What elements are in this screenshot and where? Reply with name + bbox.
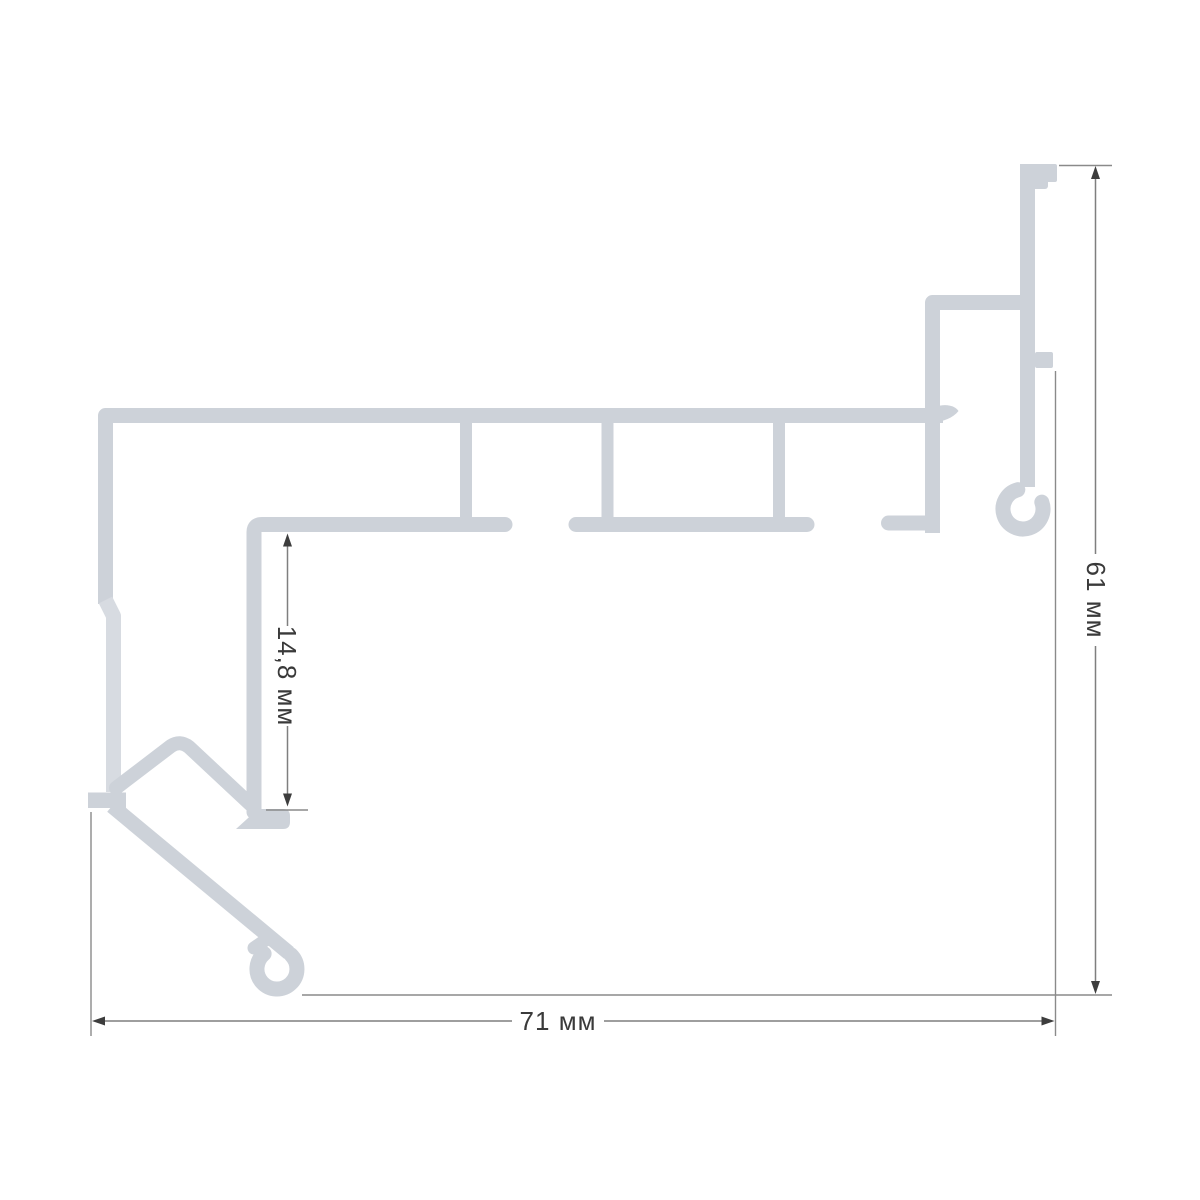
arrowhead-right-icon (1042, 1017, 1055, 1026)
profile-riser-arm (933, 303, 1031, 418)
profile-chevron-brace (116, 743, 250, 804)
inner-dimension-label: 14,8 мм (272, 626, 302, 727)
dimension-width: 71 мм (91, 371, 1056, 1036)
arrowhead-down-icon (1091, 981, 1100, 994)
arrowhead-left-icon (92, 1017, 105, 1026)
profile-cross-section-drawing: 61 мм 71 мм 14,8 мм (0, 0, 1200, 1200)
dimension-inner: 14,8 мм (266, 534, 308, 811)
profile-shape (88, 164, 1057, 989)
profile-right-hook (1003, 490, 1043, 529)
profile-left-wall-lower (106, 600, 114, 792)
profile-bottom-hook-tip (254, 939, 267, 948)
profile-side-tab (1035, 352, 1053, 368)
height-dimension-label: 61 мм (1081, 562, 1111, 639)
technical-drawing-canvas: 61 мм 71 мм 14,8 мм (0, 0, 1200, 1200)
profile-top-band (106, 416, 944, 605)
width-dimension-label: 71 мм (520, 1006, 597, 1036)
profile-top-lip-step (1020, 164, 1048, 189)
profile-inner-bar-foot (236, 809, 290, 829)
arrowhead-up-icon (1091, 166, 1100, 179)
profile-bottom-hook (257, 954, 297, 989)
dimension-height: 61 мм (302, 166, 1112, 996)
arrowhead-up-icon (283, 534, 292, 547)
arrowhead-down-icon (283, 794, 292, 807)
